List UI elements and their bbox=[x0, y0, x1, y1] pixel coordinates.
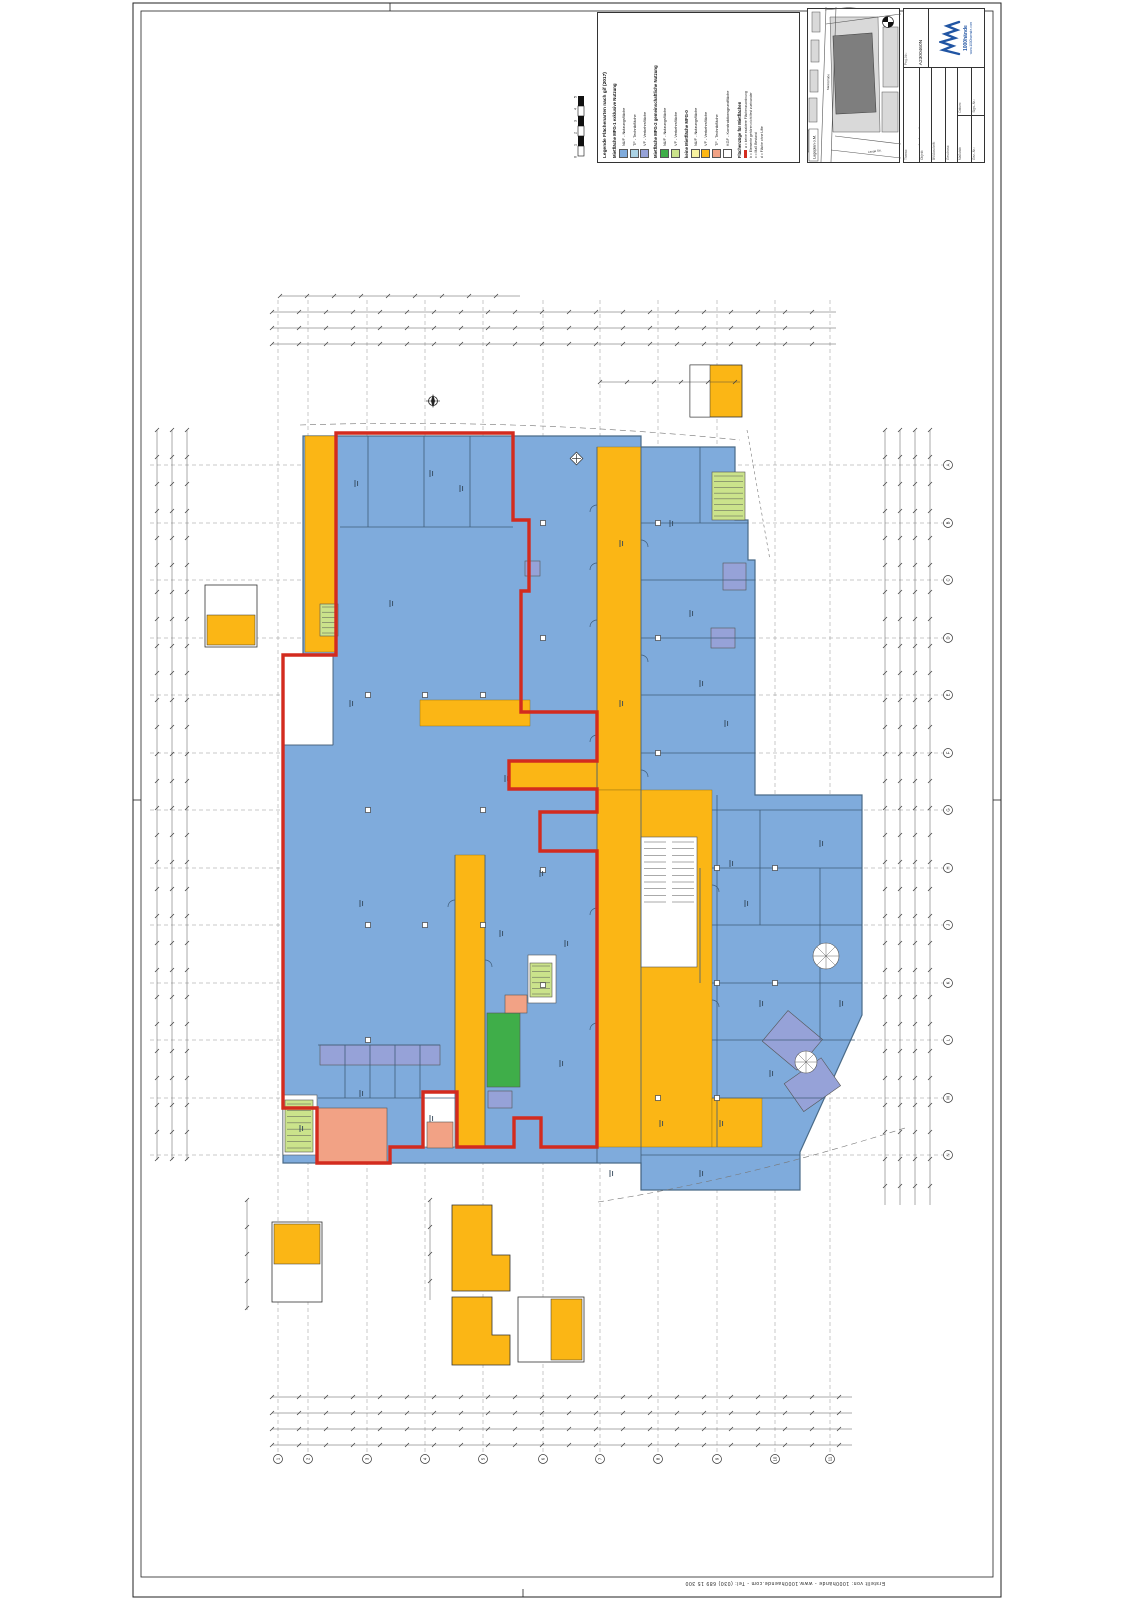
color-swatch bbox=[701, 149, 710, 158]
site-map-svg: Marktstraße Lange Str. Lageplan o.M. bbox=[808, 7, 901, 162]
legend-note: b = Elemente gehören nicht fest zueinand… bbox=[749, 17, 753, 158]
legend-item: NUF - Nutzungsfläche bbox=[660, 17, 669, 158]
axis-bubble-right: C bbox=[946, 578, 951, 581]
street-label: Marktstraße bbox=[826, 74, 830, 90]
axis-bubble-right: F bbox=[946, 751, 951, 754]
site-map-caption: Lageplan o.M. bbox=[812, 135, 816, 159]
scale-bar-label: 5 bbox=[573, 96, 577, 98]
logo-icon bbox=[939, 18, 961, 58]
axis-bubble-right: J bbox=[946, 924, 951, 926]
scale-bar-label: 0 bbox=[573, 156, 577, 158]
axis-bubble-bottom: 11 bbox=[828, 1456, 833, 1461]
scale-bar: 012345 bbox=[573, 96, 584, 158]
color-swatch bbox=[640, 149, 649, 158]
logo-sub: www.1000haende.com bbox=[969, 22, 973, 54]
legend-item: NUF - Nutzungsfläche bbox=[691, 17, 700, 158]
floor-plan-svg: 012345 bbox=[0, 0, 1131, 1600]
legend-item: NUF - Nutzungsfläche bbox=[619, 17, 628, 158]
field-objekt: Objekt: Kaufpark bbox=[920, 68, 932, 162]
drawing-sheet: 012345 bbox=[0, 0, 1131, 1600]
color-swatch bbox=[691, 149, 700, 158]
axis-bubble-right: M bbox=[946, 1096, 951, 1100]
credit-line: Erstellt von: 1000hände - www.1000haende… bbox=[565, 1580, 1005, 1586]
legend-item: TF - Technikfläche bbox=[630, 17, 639, 158]
color-swatch bbox=[660, 149, 669, 158]
legend-note: d = Fläche ohne Lifte bbox=[760, 17, 764, 158]
title-block-fields: Thema: RM - Flächenplan Objekt: Kaufpark… bbox=[904, 67, 984, 162]
axis-bubble-right: K bbox=[946, 981, 951, 984]
street-label: Lange Str. bbox=[868, 148, 882, 154]
legend-item: TF - Technikfläche bbox=[712, 17, 721, 158]
color-swatch bbox=[712, 149, 721, 158]
project-number: Proj.-Nr.: A2300460N bbox=[904, 9, 929, 67]
axis-bubble-right: A bbox=[946, 463, 951, 466]
axis-bubble-right: D bbox=[946, 636, 951, 639]
legend-title: Legende Flächenarten nach gif (2017) bbox=[603, 17, 608, 158]
field-thema: Thema: RM - Flächenplan bbox=[904, 68, 920, 162]
field-scale-date: Maßstab: 1:100/A0 Datum: 15.12.2023 bbox=[958, 68, 972, 162]
red-boundary-sample bbox=[744, 150, 746, 158]
legend-notes-header: Flächenzüge für Mietflächen bbox=[737, 17, 742, 158]
axis-bubble-right: N bbox=[946, 1153, 951, 1156]
legend-group-header: Mietfläche MFG-1 exklusive Nutzung bbox=[612, 17, 617, 158]
legend-group-header: Mietfläche MFG-2 gemeinschaftliche Nutzu… bbox=[653, 17, 658, 158]
field-anschrift: BV/Anschrift: 27749 Delmenhorst, Lange S… bbox=[932, 68, 946, 162]
legend-item: VF - Verkehrsfläche bbox=[640, 17, 649, 158]
field-sign: Gez.-Nr.: Sign.-Nr.: bbox=[972, 68, 984, 162]
company-logo: 1000hände www.1000haende.com bbox=[929, 9, 984, 67]
color-swatch bbox=[671, 149, 680, 158]
legend-note: c = Maß Bestand bbox=[754, 17, 758, 158]
title-block: Thema: RM - Flächenplan Objekt: Kaufpark… bbox=[903, 8, 985, 163]
scale-bar-label: 2 bbox=[573, 132, 577, 134]
color-swatch bbox=[723, 149, 732, 158]
scale-bar-label: 4 bbox=[573, 108, 577, 110]
color-swatch bbox=[619, 149, 628, 158]
legend-note: a = keine exaktere Flächenzuordnung bbox=[744, 17, 748, 158]
title-block-right: Proj.-Nr.: A2300460N 1000hände www.1000h… bbox=[904, 9, 984, 67]
site-map-panel: Marktstraße Lange Str. Lageplan o.M. bbox=[807, 8, 900, 163]
scale-bar-label: 3 bbox=[573, 120, 577, 122]
legend-panel: Legende Flächenarten nach gif (2017) Mie… bbox=[597, 12, 800, 163]
north-arrow-icon bbox=[426, 394, 440, 408]
legend-item: KGF - Konstruktionsgrundfläche bbox=[723, 17, 732, 158]
highlighted-building bbox=[833, 33, 876, 114]
axis-bubble-bottom: 10 bbox=[773, 1456, 778, 1461]
scale-bar-label: 1 bbox=[573, 144, 577, 146]
axis-bubble-right: G bbox=[946, 808, 951, 811]
axis-bubble-right: B bbox=[946, 521, 951, 524]
field-geschoss: Geschoss: Erdgeschoss bbox=[946, 68, 958, 162]
axis-bubble-right: H bbox=[946, 866, 951, 869]
legend-item: VF - Verkehrsfläche bbox=[671, 17, 680, 158]
axis-bubble-right: E bbox=[946, 693, 951, 696]
color-swatch bbox=[630, 149, 639, 158]
legend-group-header: keine Mietfläche MFG-0 bbox=[684, 17, 689, 158]
legend-item: VF - Verkehrsfläche bbox=[701, 17, 710, 158]
map-north-icon bbox=[883, 17, 894, 28]
